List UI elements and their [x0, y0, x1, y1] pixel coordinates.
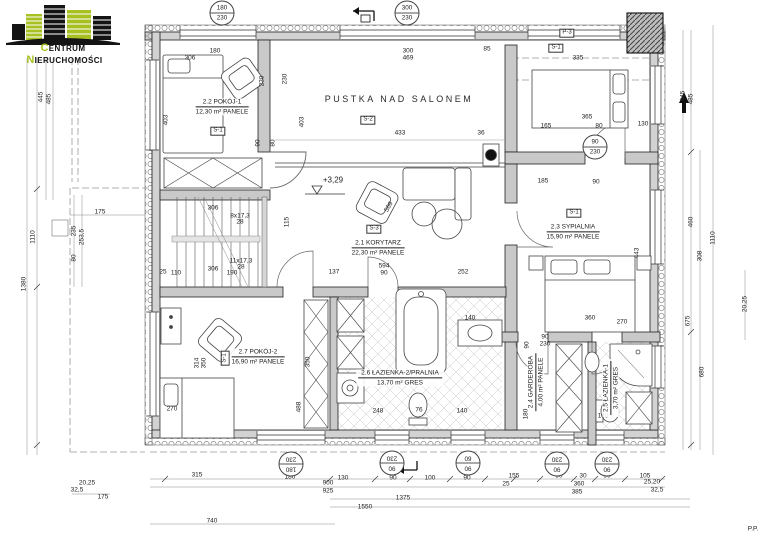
dimension-label: 137 [329, 268, 340, 275]
window-size-tag: 90230 [380, 451, 405, 476]
dimension-label: 253,5 [78, 229, 85, 245]
dimension-label: 140 [457, 407, 468, 414]
dimension-label: 20,25 [741, 296, 748, 312]
dimension-label: 90 [389, 474, 396, 481]
dimension-label: 175 [95, 208, 106, 215]
dimension-label: 270 [167, 405, 178, 412]
dimension-label: 36 [477, 129, 484, 136]
window-size-tag: 90230 [583, 135, 608, 160]
dimension-label: 155 [509, 472, 520, 479]
dimension-label: 306 [208, 204, 219, 211]
dimension-label: 306 [208, 265, 219, 272]
dimension-label: 90 [592, 178, 599, 185]
dimension-label: 76 [415, 406, 422, 413]
dimension-label: 365 [582, 113, 593, 120]
dimension-label: 80 [595, 122, 602, 129]
dimension-label: 569 [383, 201, 395, 214]
dimension-label: 90 [254, 139, 261, 146]
dimension-label: 360 [574, 480, 585, 487]
window-size-tag: 90230 [545, 452, 570, 477]
dimension-label: 900 [323, 479, 334, 486]
dimension-label: 1550 [358, 503, 372, 510]
dimension-label: 1375 [396, 494, 410, 501]
room-label: 2.4 GARDEROBA4,00 m² PANELE [527, 351, 544, 413]
dimension-label: 130 [338, 474, 349, 481]
dimension-label: 306 [185, 54, 196, 61]
section-marker-s1: S-1 [548, 44, 563, 53]
logo-word-nieruchomosci: Nieruchomości [26, 54, 102, 66]
dimension-label: 185 [538, 177, 549, 184]
window-size-tag: 180230 [279, 452, 304, 477]
dimension-label: 1110 [709, 231, 716, 245]
dimension-label: 180 [210, 47, 221, 54]
dimension-label: 80 [269, 139, 276, 146]
dimension-label: 445 [37, 92, 44, 103]
dimension-label: 85 [483, 45, 490, 52]
logo-text: CentrumNieruchomości [2, 42, 124, 66]
plan-labels-layer: 1803063004698533536513016580433361859023… [0, 0, 768, 543]
dimension-label: 248 [373, 407, 384, 414]
section-marker-s1: S-1 [221, 350, 230, 365]
floor-plan-page: 1803063004698533536513016580433361859023… [0, 0, 768, 543]
agency-logo: CentrumNieruchomości [2, 2, 124, 58]
dimension-label: 90 [523, 341, 530, 348]
dimension-label: 1110 [29, 230, 36, 244]
dimension-label: 130 [638, 120, 649, 127]
level-marker-text: +3,29 [323, 177, 343, 186]
dimension-label: 28 [237, 263, 244, 270]
dimension-label: 32,5 [651, 486, 664, 493]
dimension-label: 925 [323, 487, 334, 494]
room-label: 2.2 POKÓJ-112,30 m² PANELE [194, 98, 251, 115]
dimension-label: 485 [45, 94, 52, 105]
room-label: 2.3 SYPIALNIA15,90 m² PANELE [545, 223, 602, 240]
dimension-label: 115 [283, 217, 290, 227]
dimension-label: 252 [458, 268, 469, 275]
dimension-label: 80 [70, 254, 77, 261]
dimension-label: 190 [227, 269, 238, 276]
dimension-label: 675 [684, 316, 691, 327]
dimension-label: 740 [207, 517, 218, 524]
room-label: 2.7 POKÓJ-216,90 m² PANELE [230, 348, 287, 365]
dimension-label: 90 [463, 474, 470, 481]
dimension-label: 110 [171, 269, 181, 276]
room-label: 2.6 ŁAZIENKA-2/PRALNIA13,70 m² GRES [356, 369, 444, 386]
panel-marker-p3: P-3 [559, 29, 574, 38]
dimension-label: 433 [395, 129, 406, 136]
dimension-label: 230 [281, 74, 288, 85]
dimension-label: 469 [403, 54, 414, 61]
section-marker-s1: S-1 [566, 209, 581, 218]
dimension-label: 680 [698, 367, 705, 378]
dimension-label: 100 [425, 474, 436, 481]
dimension-label: 385 [572, 488, 583, 495]
dimension-label: 230 [540, 340, 551, 347]
dimension-label: 460 [687, 217, 694, 228]
section-marker-s3: S-3 [366, 225, 381, 234]
dimension-label: 25 [502, 480, 509, 487]
dimension-label: 350 [304, 357, 311, 368]
dimension-label: 30 [579, 472, 586, 479]
dimension-label: 360 [585, 314, 596, 321]
logo-skyline-graphic [2, 2, 124, 46]
dimension-label: 25 [159, 268, 166, 275]
dimension-label: 403 [162, 115, 169, 126]
dimension-label: 235 [70, 226, 77, 237]
dimension-label: 350 [200, 358, 207, 369]
logo-word-centrum: Centrum [41, 42, 86, 54]
room-label: 2.5 ŁAZIENKA-13,70 m² GRES [602, 359, 619, 417]
dimension-label: 308 [696, 251, 703, 262]
dimension-label: 488 [295, 402, 302, 413]
section-marker-s1: S-1 [210, 127, 225, 136]
dimension-label: 140 [465, 314, 476, 321]
dimension-label: 270 [617, 318, 628, 325]
section-marker-s2: S-2 [360, 116, 375, 125]
dimension-label: 443 [633, 248, 640, 259]
dimension-label: 165 [541, 122, 552, 129]
dimension-label: 25,20 [644, 478, 660, 485]
window-size-tag: 300230 [395, 1, 420, 26]
window-size-tag: 9060 [456, 451, 481, 476]
dimension-label: 32,5 [71, 486, 84, 493]
dimension-label: 230 [258, 76, 265, 87]
dimension-label: 28 [236, 218, 243, 225]
dimension-label: 403 [298, 117, 305, 128]
room-label: 2.1 KORYTARZ22,30 m² PANELE [350, 239, 407, 256]
dimension-label: 1380 [20, 277, 27, 291]
dimension-label: 90 [380, 269, 387, 276]
window-size-tag: 180230 [210, 1, 235, 26]
window-size-tag: 90230 [595, 452, 620, 477]
dimension-label: 175 [98, 493, 109, 500]
dimension-label: 335 [573, 54, 584, 61]
dimension-label: 315 [192, 471, 203, 478]
dimension-label: 485 [687, 94, 694, 105]
corner-note: P.P. [748, 525, 759, 532]
dimension-label: 445 [679, 91, 686, 102]
void-over-living-room-label: PUSTKA NAD SALONEM [325, 95, 474, 105]
